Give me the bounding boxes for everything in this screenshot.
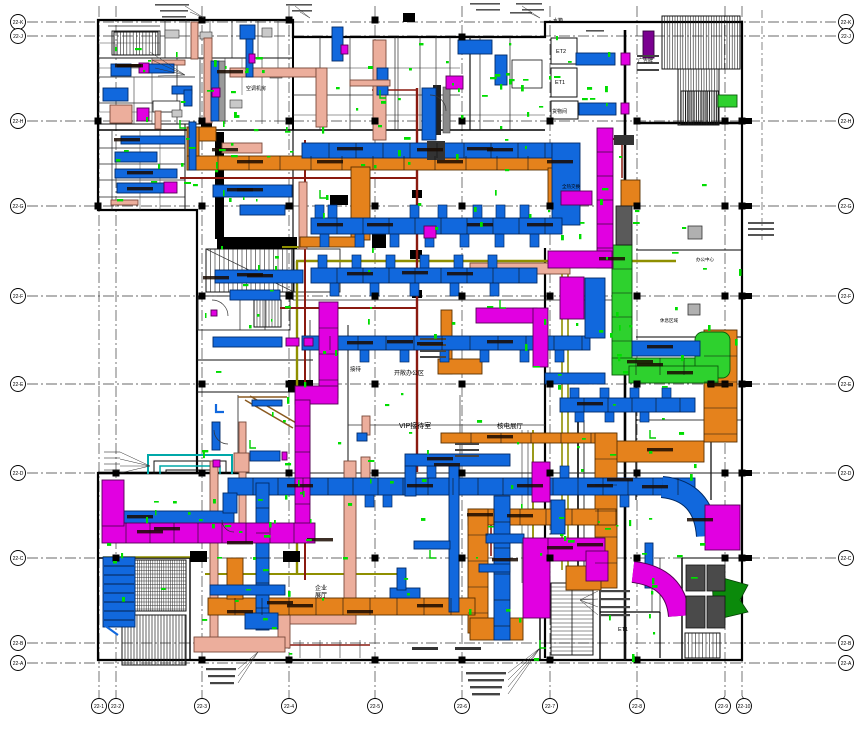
svg-text:22-1: 22-1 (94, 704, 104, 710)
svg-text:22-A: 22-A (13, 661, 24, 667)
svg-text:22-J: 22-J (13, 34, 23, 40)
svg-text:22-H: 22-H (13, 119, 24, 125)
svg-text:接待: 接待 (350, 365, 362, 373)
svg-text:ET2: ET2 (556, 49, 566, 55)
svg-text:22-9: 22-9 (718, 704, 728, 710)
svg-text:22-A: 22-A (841, 661, 852, 667)
svg-text:22-E: 22-E (841, 382, 852, 388)
svg-text:22-8: 22-8 (632, 704, 642, 710)
svg-text:22-B: 22-B (841, 641, 852, 647)
svg-text:22-H: 22-H (841, 119, 852, 125)
svg-text:22-B: 22-B (13, 641, 24, 647)
svg-text:22-4: 22-4 (284, 704, 294, 710)
svg-text:22-6: 22-6 (457, 704, 467, 710)
svg-text:22-C: 22-C (841, 556, 852, 562)
svg-text:全热交换: 全热交换 (562, 183, 580, 190)
svg-text:22-C: 22-C (13, 556, 24, 562)
svg-text:核电展厅: 核电展厅 (497, 421, 524, 430)
svg-text:ET1: ET1 (618, 627, 628, 633)
svg-text:22-K: 22-K (13, 20, 24, 26)
svg-text:22-D: 22-D (841, 471, 852, 477)
svg-text:企业: 企业 (315, 584, 327, 592)
svg-text:22-5: 22-5 (370, 704, 380, 710)
svg-text:休息区域: 休息区域 (660, 317, 678, 324)
svg-text:22-10: 22-10 (738, 704, 751, 710)
svg-text:水箱: 水箱 (553, 17, 563, 24)
svg-text:22-F: 22-F (13, 294, 23, 300)
svg-text:22-E: 22-E (13, 382, 24, 388)
svg-text:22-3: 22-3 (197, 704, 207, 710)
svg-text:VIP接待室: VIP接待室 (399, 421, 431, 430)
svg-text:22-2: 22-2 (111, 704, 121, 710)
svg-text:22-K: 22-K (841, 20, 852, 26)
svg-text:货物间: 货物间 (552, 108, 567, 115)
svg-text:展厅: 展厅 (315, 592, 327, 599)
svg-text:开敞办公区: 开敞办公区 (394, 369, 424, 377)
svg-text:22-J: 22-J (841, 34, 851, 40)
svg-text:22-7: 22-7 (545, 704, 555, 710)
svg-text:22-G: 22-G (12, 204, 23, 210)
svg-text:空调机房: 空调机房 (246, 85, 266, 92)
svg-text:办公中心: 办公中心 (696, 256, 714, 263)
svg-text:广告牌: 广告牌 (638, 57, 653, 64)
svg-text:22-G: 22-G (840, 204, 851, 210)
svg-text:22-D: 22-D (13, 471, 24, 477)
svg-text:ET1: ET1 (555, 80, 565, 86)
svg-text:22-F: 22-F (841, 294, 851, 300)
